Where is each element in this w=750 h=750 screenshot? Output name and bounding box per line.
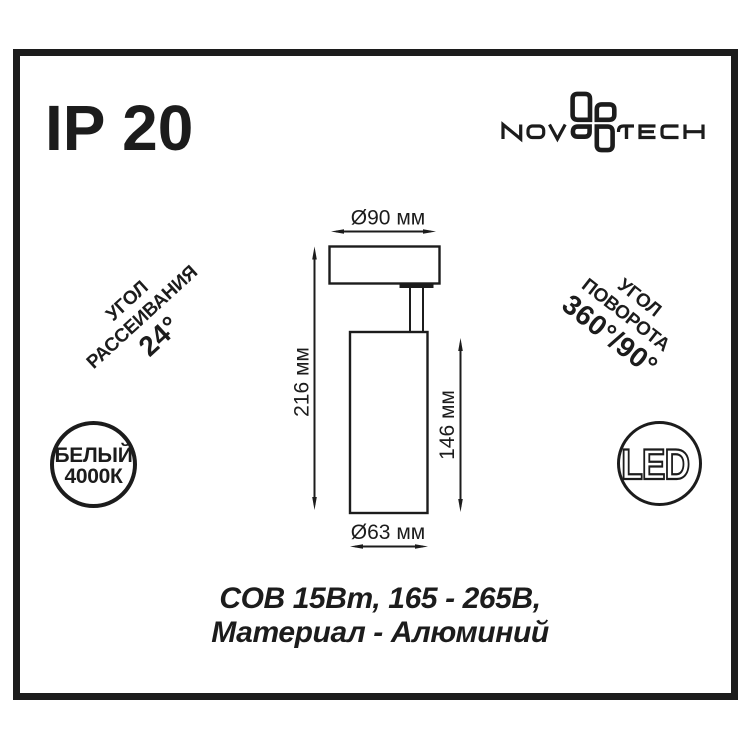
svg-text:Ø63 мм: Ø63 мм xyxy=(351,521,425,544)
svg-text:216 мм: 216 мм xyxy=(291,347,314,417)
svg-text:146 мм: 146 мм xyxy=(436,390,459,460)
svg-text:Ø90 мм: Ø90 мм xyxy=(351,207,425,230)
